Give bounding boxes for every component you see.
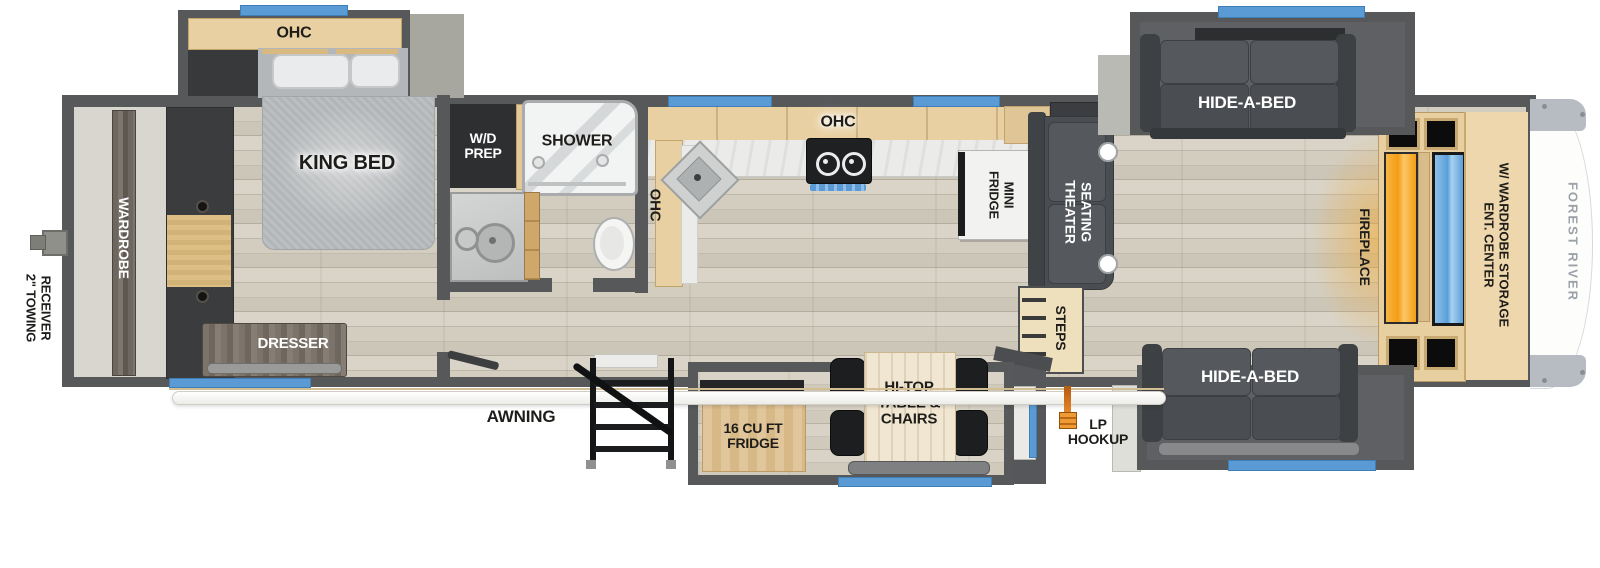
step-foot [666,460,676,469]
step-platform [594,354,658,368]
entry-door-window [1029,398,1037,458]
sofa-seat-cushion [1162,396,1251,440]
cap-screw [1542,104,1547,109]
entry-steps-exterior [580,354,684,470]
top-slide-window [1218,6,1365,18]
stove-burner [816,152,840,176]
ent-center-pillar [1418,152,1430,322]
kitchen-window [913,96,1000,107]
sofa-armrest [1338,344,1358,442]
top-slide-shelf [1195,28,1345,40]
step-foot [586,460,596,469]
cap-screw [1542,378,1547,383]
stove-burner [842,152,866,176]
vanity-sink [475,223,515,263]
dinette-chair [952,410,988,456]
rear-bottom-window [169,378,311,388]
sofa-armrest [1140,34,1160,132]
vanity-knob [455,227,479,251]
closet-knob [196,290,209,303]
hide-a-bed-bottom-label: HIDE-A-BED [1201,368,1299,386]
front-cap [1530,99,1593,389]
hide-a-bed-top-label: HIDE-A-BED [1198,94,1296,112]
kitchen-ohc-left-label: OHC [646,189,663,222]
fireplace-label: FIREPLACE [1356,208,1372,286]
theater-seating-label: SEATING THEATER [1062,180,1093,244]
toilet-seat [600,226,624,260]
mini-fridge-handle [958,152,965,236]
top-slide-side-shade [1098,55,1132,135]
kitchen-ohc-top-label: OHC [821,113,856,130]
towing-receiver-label: RECEIVER 2" TOWING [23,274,52,342]
kitchen-window [668,96,772,107]
sofa-back-cushion [1250,40,1339,84]
ent-center-label: W/ WARDROBE STORAGE ENT. CENTER [1481,163,1510,327]
cap-screw [1580,112,1585,117]
steps-label: STEPS [1052,306,1068,351]
cap-screw [1580,370,1585,375]
stove-burner-dot [849,159,854,164]
rear-closet-shelf [167,215,231,287]
bedroom-cabinet-dark [188,50,258,96]
awning-label: AWNING [487,408,556,426]
bath-left-wall [437,95,450,300]
stove-accent [810,184,866,191]
brand-label: FOREST RIVER [1565,182,1580,302]
tv [1432,152,1466,326]
dinette-window [838,477,992,487]
step-tread [1022,298,1046,302]
lp-hose [1064,386,1071,414]
sofa-front-bar [1158,442,1360,456]
shower-glass-line [528,182,626,186]
vanity-sink-drain [489,237,496,244]
pillow [272,54,350,89]
king-slide-side-panel [408,14,464,98]
towing-hitch-stub [30,235,46,250]
closet-knob [196,200,209,213]
dresser-label: DRESSER [257,336,328,352]
theater-cupholder [1098,142,1118,162]
step-rung [594,446,670,452]
bedroom-ohc-label: OHC [277,24,312,41]
dresser-rail [207,363,342,374]
ent-cabinet-opening [1424,118,1458,150]
shower-drain [532,156,545,169]
bedroom-window [240,5,348,16]
vanity-drawers [524,192,540,280]
shower-label: SHOWER [542,132,613,149]
king-bed-label: KING BED [299,153,395,175]
wd-prep-label: W/D PREP [464,131,501,161]
wardrobe-label: WARDROBE [115,197,131,279]
dinette-bench [848,461,990,475]
step-tread [1022,334,1046,338]
stove-burner-dot [823,159,828,164]
lp-hookup-label: LP HOOKUP [1068,417,1128,447]
shower-drain [596,154,609,167]
rv-floorplan: WARDROBE OHC KING BED DRESSER W/D PREP S… [0,0,1600,568]
sofa-armrest [1336,34,1356,132]
ext-fridge-label: 16 CU FT FRIDGE [723,421,782,451]
dinette-chair [830,410,866,456]
fireplace-insert [1384,152,1418,324]
sofa-seat-cushion [1252,396,1341,440]
sofa-front-lip [1150,128,1346,139]
step-tread [1022,316,1046,320]
front-cap-trim-top [1530,99,1586,131]
pillow [350,54,400,88]
front-cap-trim-bottom [1530,355,1586,387]
sink-faucet [694,174,701,181]
mini-fridge-label: MINI FRIDGE [986,171,1015,219]
bottom-slide-window [1228,460,1376,471]
theater-cupholder [1098,254,1118,274]
ent-cabinet-opening [1424,336,1458,370]
sofa-back-cushion [1160,40,1249,84]
